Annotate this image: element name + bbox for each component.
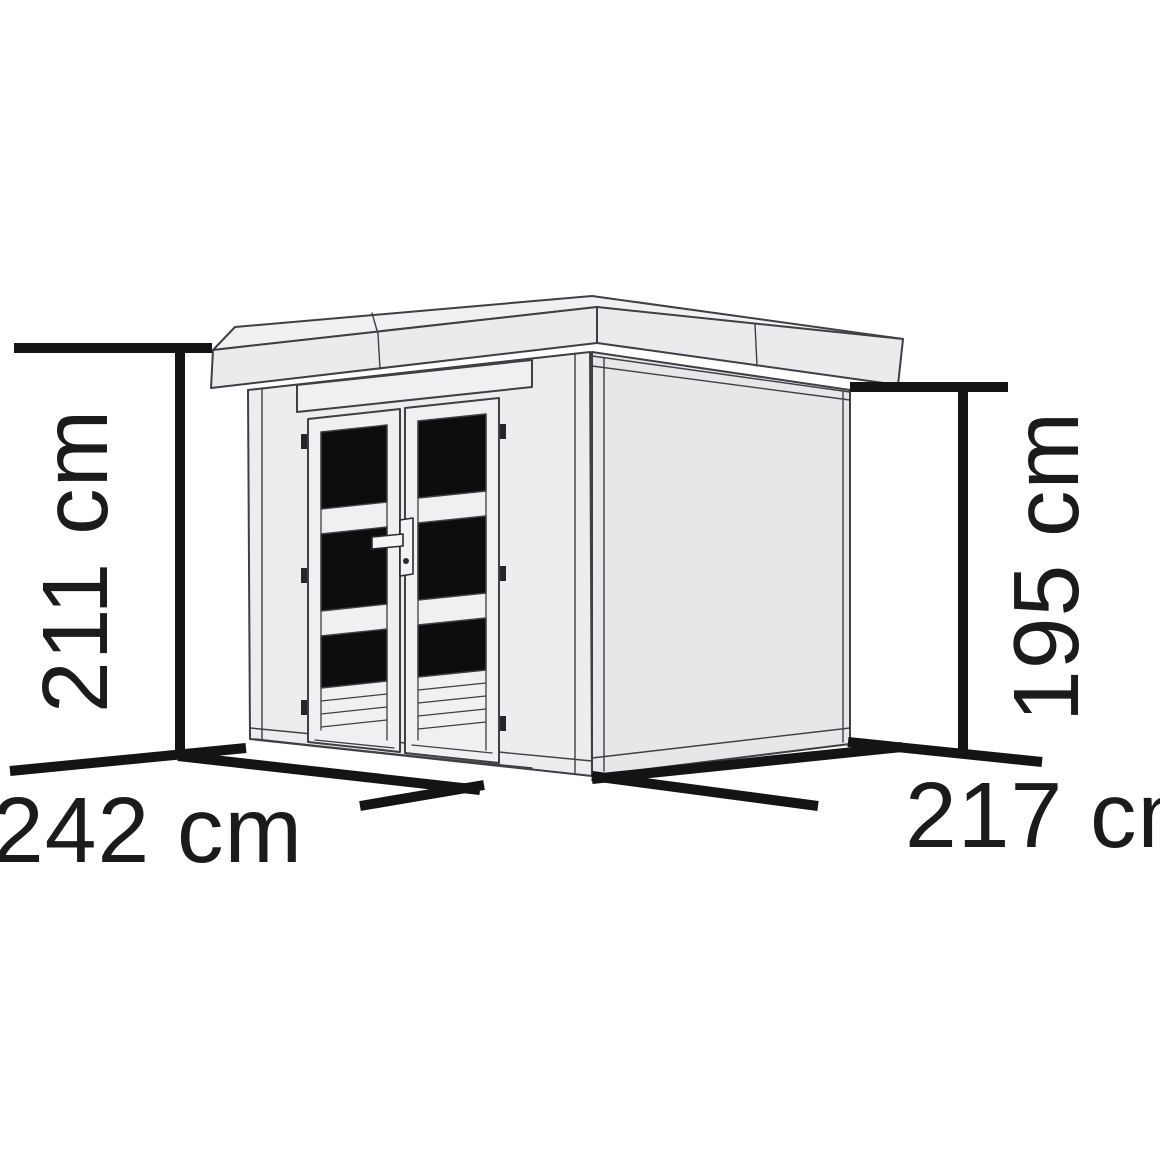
- shed-illustration: [0, 0, 1160, 1160]
- shed: [211, 296, 903, 776]
- dimension-label-width: 242 cm: [0, 782, 303, 878]
- shed-dimension-diagram: 211 cm 195 cm 242 cm 217 cm: [0, 0, 1160, 1160]
- dimension-label-wall-height: 195 cm: [998, 422, 1094, 722]
- dimension-label-total-height: 211 cm: [27, 413, 123, 713]
- shed-side-wall: [592, 352, 850, 776]
- dimension-label-depth: 217 cm: [905, 767, 1160, 863]
- right-door: [405, 398, 499, 763]
- left-door: [308, 409, 400, 752]
